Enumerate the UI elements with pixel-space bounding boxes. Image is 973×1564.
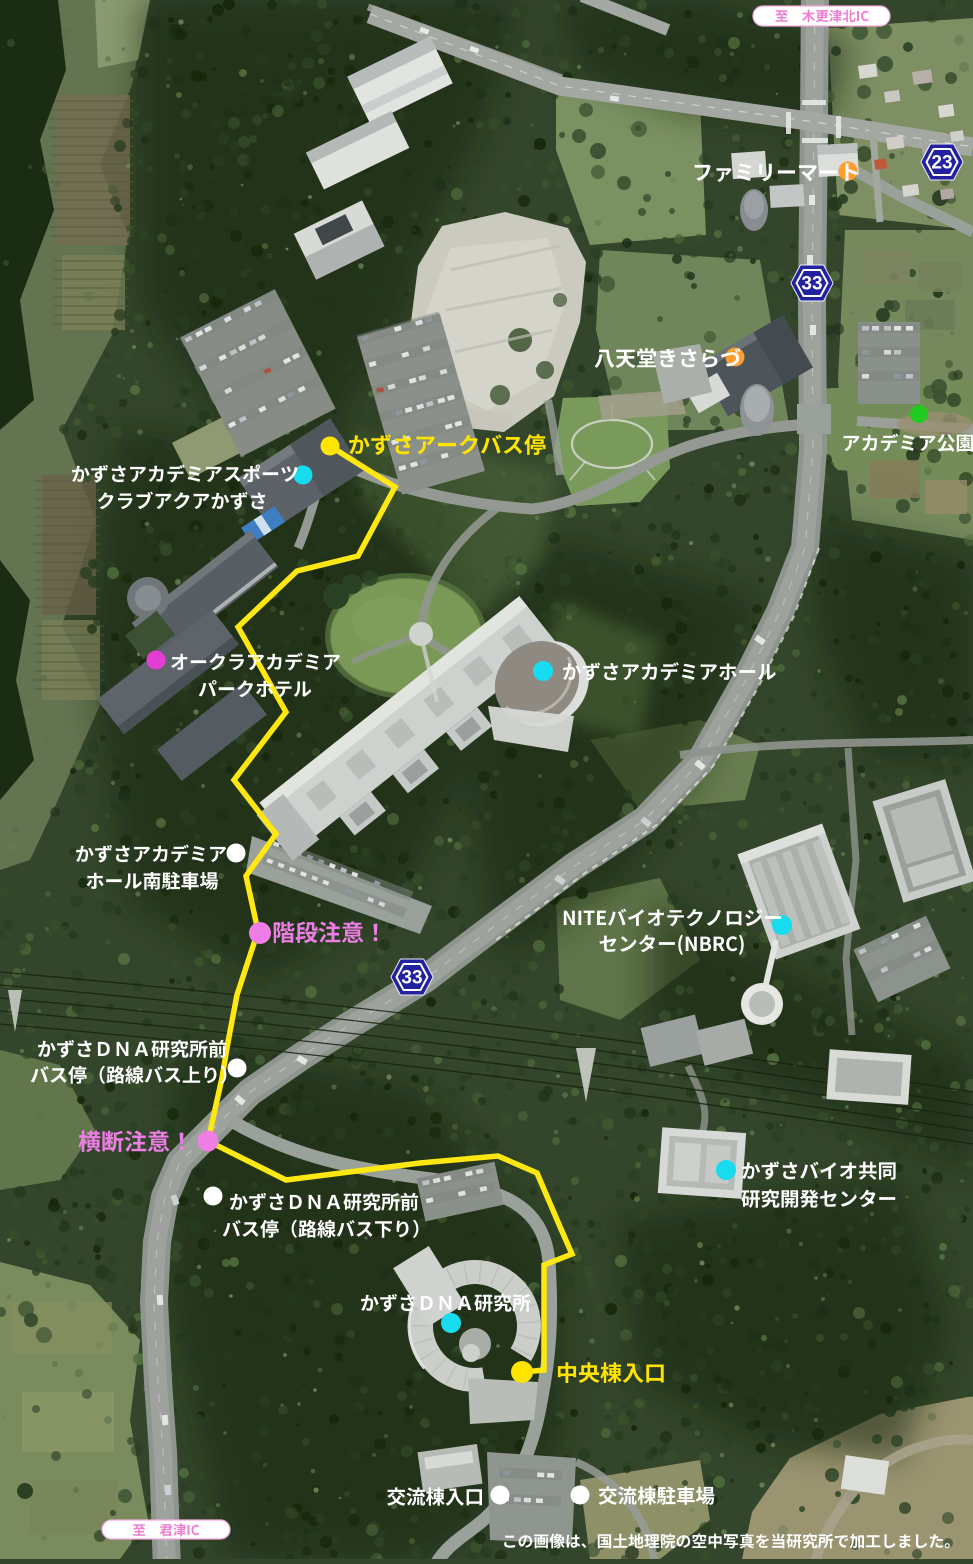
svg-text:33: 33 xyxy=(401,968,422,989)
svg-text:33: 33 xyxy=(801,274,822,295)
svg-text:23: 23 xyxy=(931,153,952,174)
